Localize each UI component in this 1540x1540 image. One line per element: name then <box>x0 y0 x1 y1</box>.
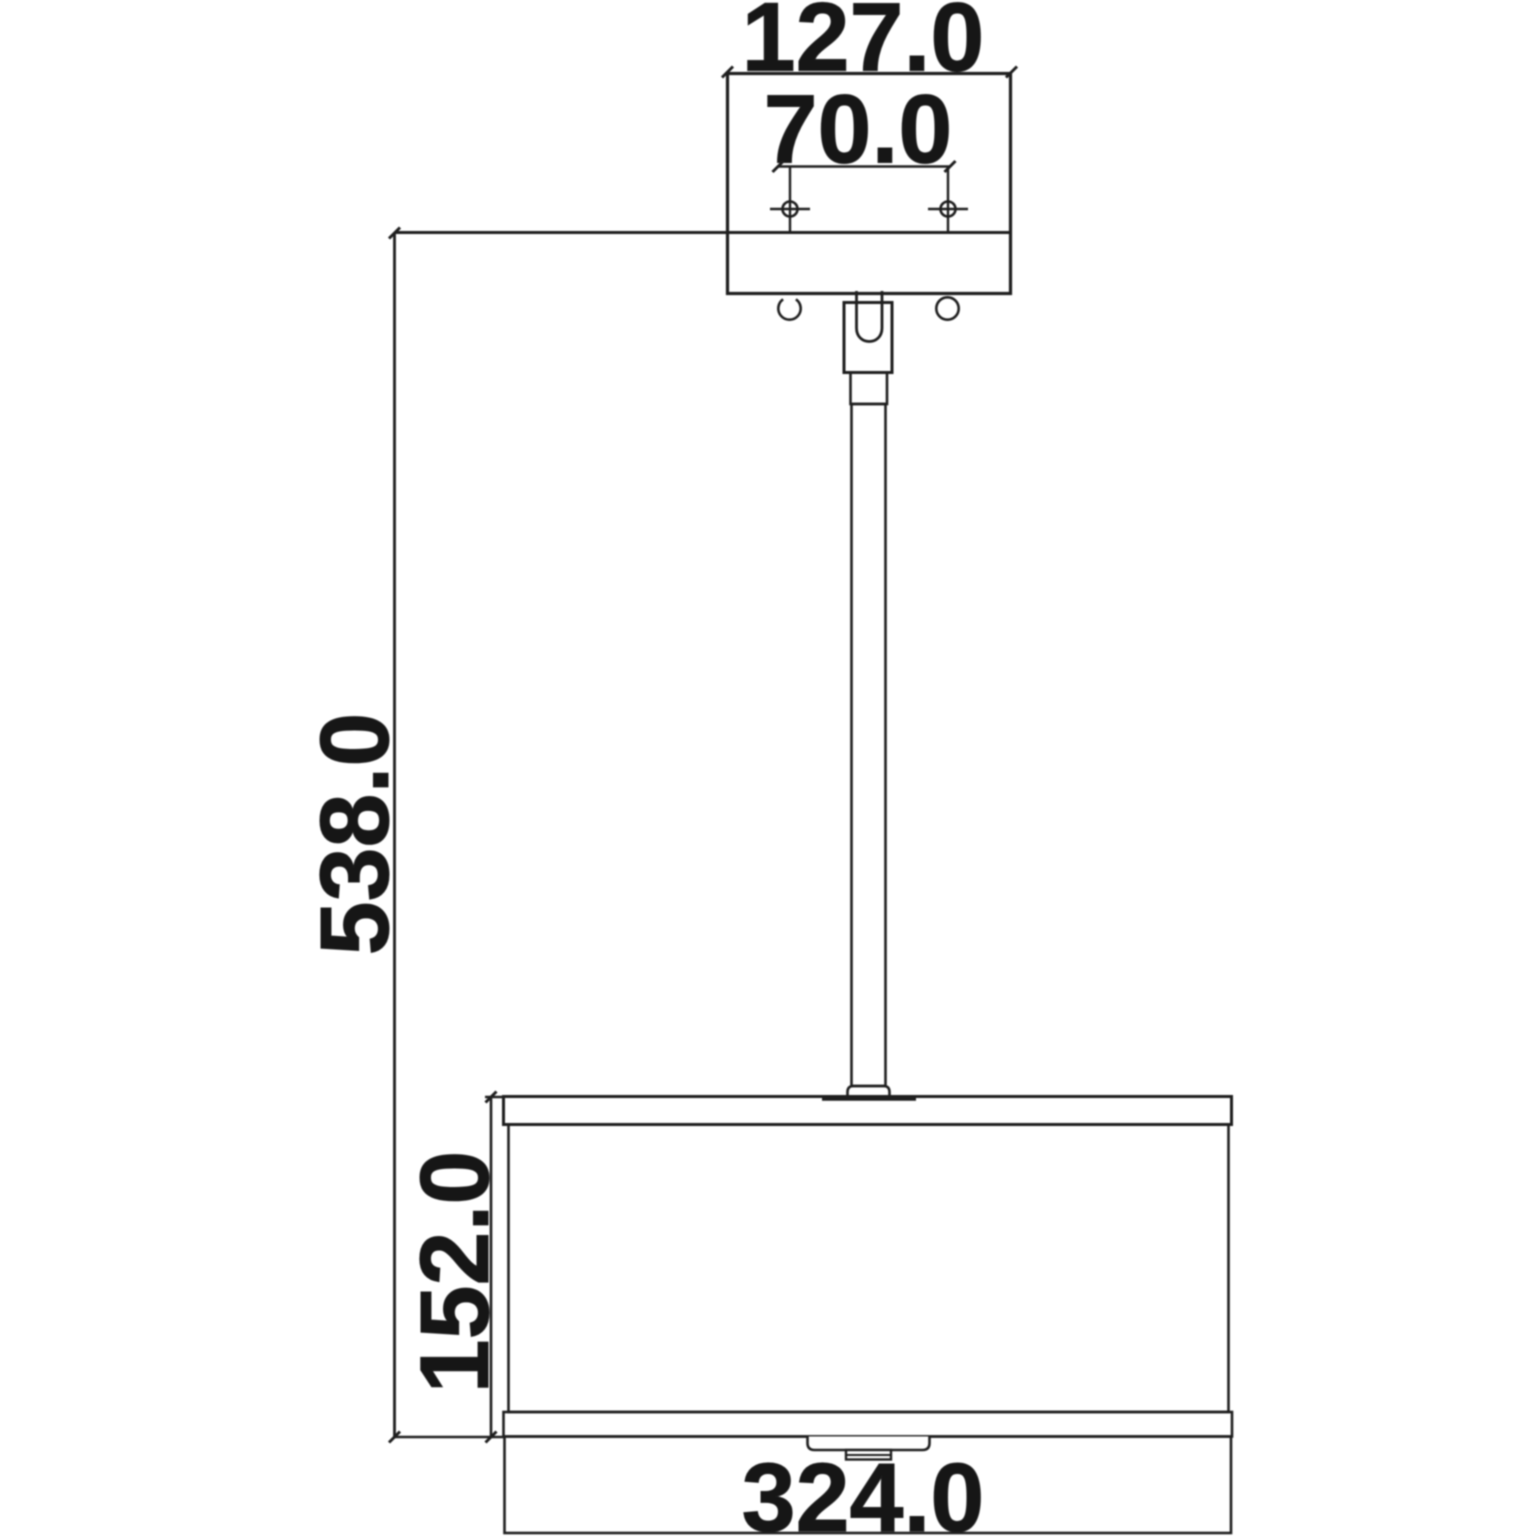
svg-text:152.0: 152.0 <box>400 1151 509 1394</box>
svg-text:324.0: 324.0 <box>742 1443 985 1540</box>
svg-text:538.0: 538.0 <box>300 713 409 956</box>
